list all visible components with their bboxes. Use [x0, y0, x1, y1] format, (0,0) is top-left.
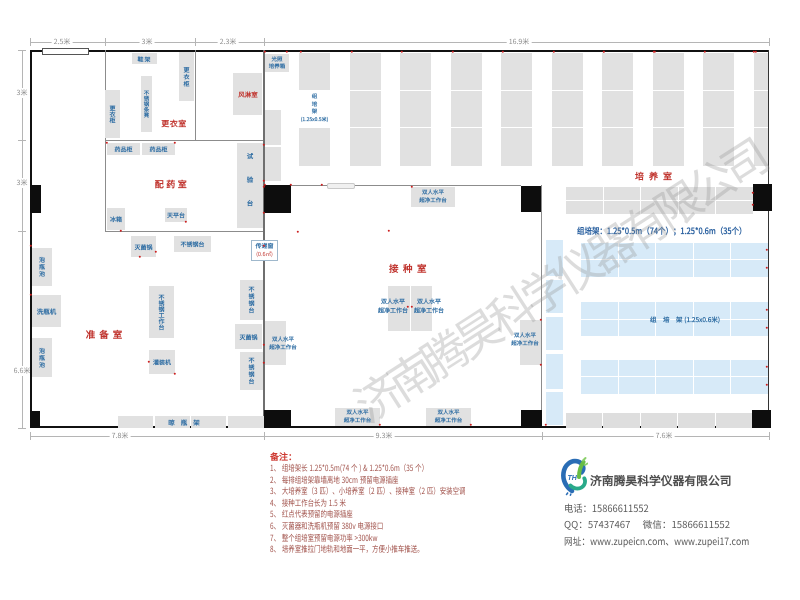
- svg-text:TH: TH: [568, 473, 578, 483]
